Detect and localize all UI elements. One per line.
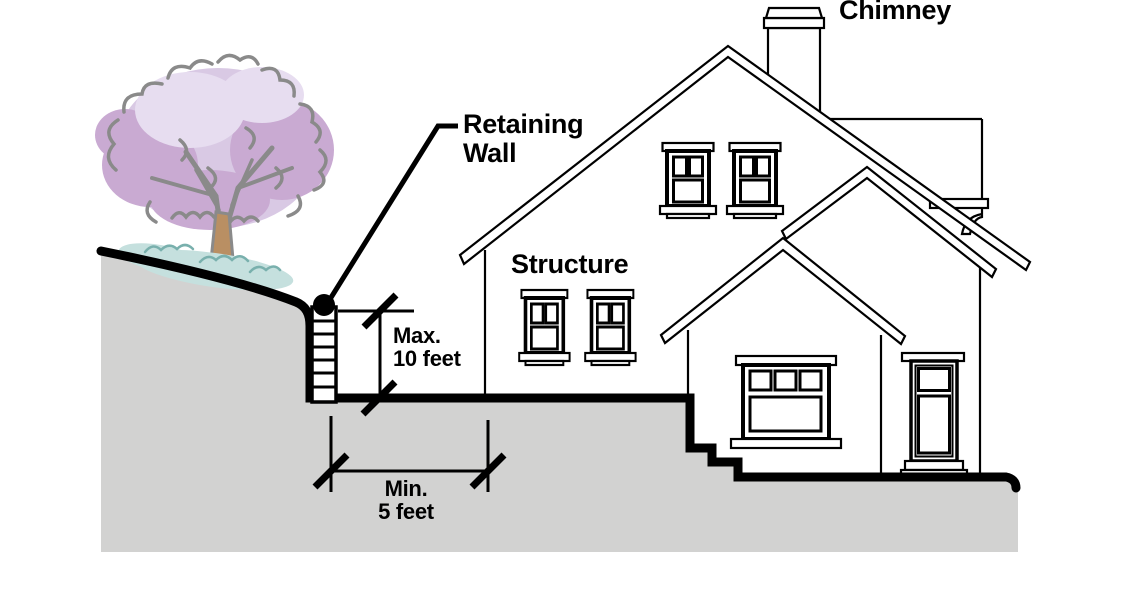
porch-window-pane [800, 371, 821, 390]
porch-window-pane [750, 397, 821, 431]
setback-diagram: Chimney Retaining Wall Structure Max. 10… [0, 0, 1145, 610]
structure-label: Structure [511, 250, 628, 279]
chimney-cap-top [766, 8, 822, 18]
porch-window-sill [731, 439, 841, 448]
upper-window-right [727, 143, 783, 218]
porch-window-pane [775, 371, 796, 390]
leader-line [327, 126, 458, 304]
door-bottom-pane [919, 396, 950, 453]
porch-window-pane [750, 371, 771, 390]
chimney-cap-band [764, 18, 824, 28]
upper-window-left [660, 143, 716, 218]
max-height-label-line1: Max. [393, 324, 461, 347]
leader-dot [313, 294, 335, 316]
porch-gable-roof [661, 238, 905, 344]
foliage-blob [220, 67, 304, 123]
door-sill [905, 461, 963, 470]
entry-door [901, 353, 967, 480]
max-height-label-line2: 10 feet [393, 347, 461, 370]
lower-window-left [519, 290, 569, 365]
chimney-label: Chimney [839, 0, 951, 25]
min-setback-label-line1: Min. [341, 477, 471, 500]
retaining-wall-label-line2: Wall [463, 139, 583, 168]
max-height-label: Max. 10 feet [393, 324, 461, 370]
door-top-pane [919, 369, 950, 391]
lower-window-right [585, 290, 635, 365]
min-setback-label-line2: 5 feet [341, 500, 471, 523]
porch-window [731, 356, 841, 448]
diagram-canvas [0, 0, 1145, 610]
retaining-wall-label: Retaining Wall [463, 110, 583, 168]
foliage-blob [150, 170, 270, 230]
retaining-wall-label-line1: Retaining [463, 110, 583, 139]
min-setback-label: Min. 5 feet [341, 477, 471, 523]
